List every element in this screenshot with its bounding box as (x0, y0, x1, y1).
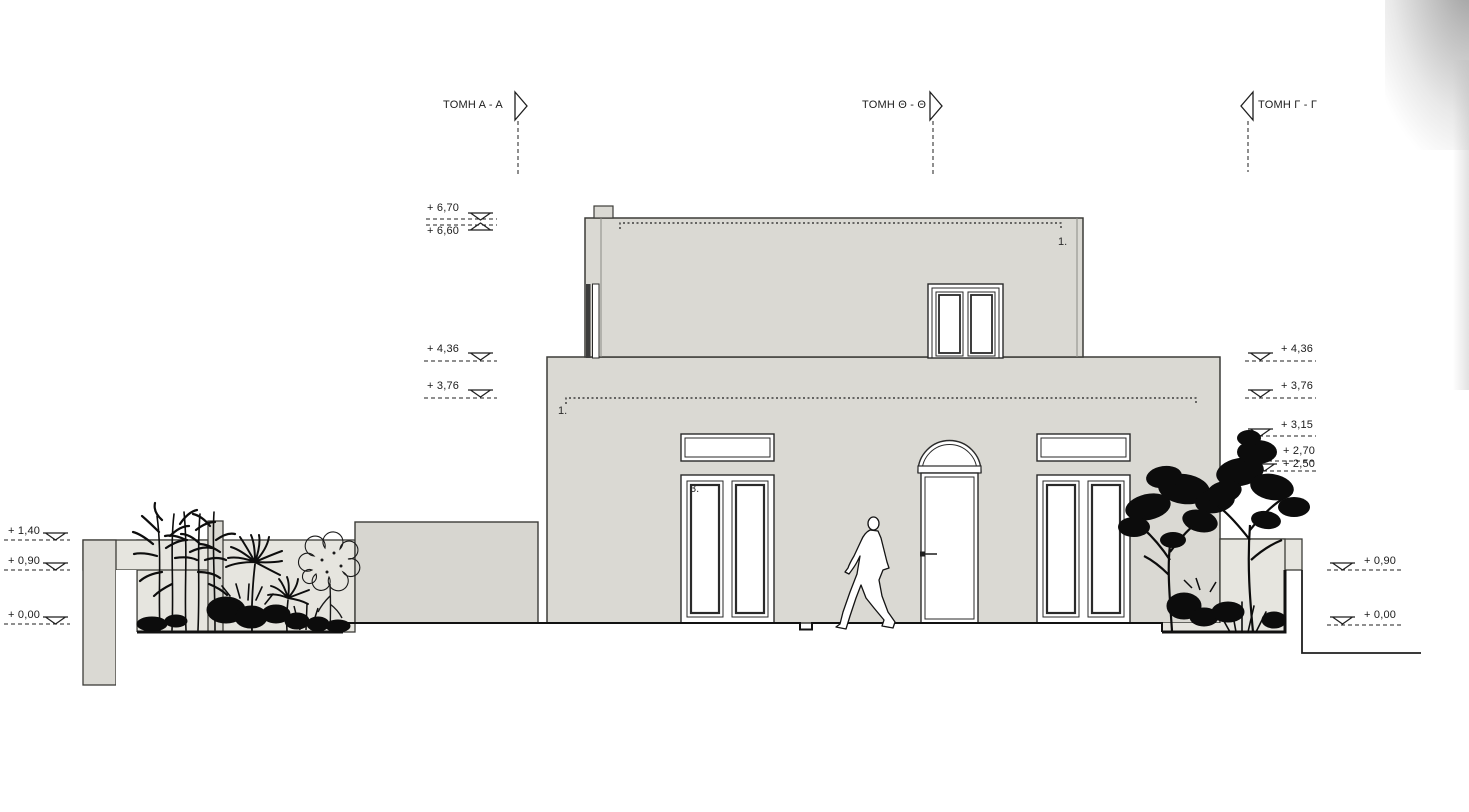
level-label-090-right: + 0,90 (1364, 555, 1396, 567)
upper-double-window (928, 284, 1003, 358)
annex-block (355, 522, 538, 623)
level-label-000-left: + 0,00 (8, 609, 40, 621)
level-label-376-right: + 3,76 (1281, 380, 1313, 392)
level-label-000-right: + 0,00 (1364, 609, 1396, 621)
level-label-436-right: + 4,36 (1281, 343, 1313, 355)
level-label-270-right: + 2,70 (1283, 445, 1315, 457)
upper-floor (585, 218, 1083, 357)
level-label-670: + 6,70 (427, 202, 459, 214)
section-label-gamma: ΤΟΜΗ Γ - Γ (1258, 99, 1317, 111)
arched-entry-door (918, 441, 981, 623)
upper-slit-window (586, 284, 599, 358)
level-label-090-left: + 0,90 (8, 555, 40, 567)
level-label-660: + 6,60 (427, 225, 459, 237)
level-label-315-right: + 3,15 (1281, 419, 1313, 431)
annotation-upper-floor: 1. (1058, 236, 1067, 248)
level-label-250-right: + 2,50 (1283, 458, 1315, 470)
annotation-ground-floor: 1. (558, 405, 567, 417)
level-label-140: + 1,40 (8, 525, 40, 537)
level-label-436-left: + 4,36 (427, 343, 459, 355)
level-label-376-left: + 3,76 (427, 380, 459, 392)
section-label-theta: ΤΟΜΗ Θ - Θ (862, 99, 926, 111)
roof-vent (594, 206, 613, 218)
elevation-drawing (0, 0, 1469, 812)
section-label-a: ΤΟΜΗ Α - Α (443, 99, 503, 111)
page-edge-shade (1453, 60, 1469, 390)
elevation-drawing-page: ΤΟΜΗ Α - Α ΤΟΜΗ Θ - Θ ΤΟΜΗ Γ - Γ + 6,70 … (0, 0, 1469, 812)
annotation-left-door: 3. (690, 483, 699, 495)
